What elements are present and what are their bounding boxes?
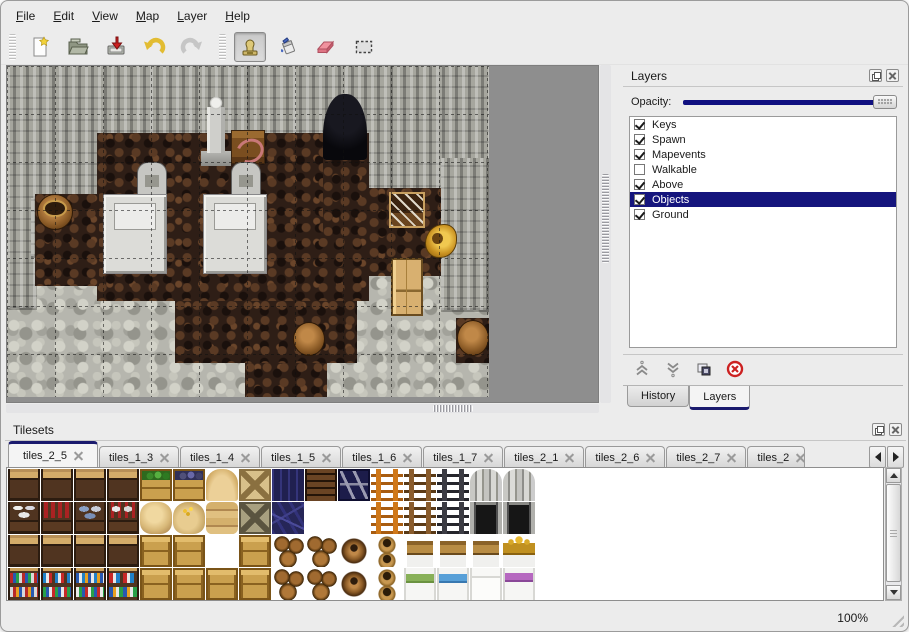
tileset-tab-label: tiles_2 — [757, 452, 789, 464]
tileset-tile-bed-blue[interactable] — [437, 568, 469, 600]
map-vertical-scrollbar-thumb[interactable] — [602, 174, 609, 263]
tileset-tile-shelf-jars[interactable] — [107, 502, 139, 534]
tileset-tab-tiles_1_7[interactable]: tiles_1_7 — [423, 446, 503, 468]
tileset-tab-label: tiles_1_7 — [433, 452, 477, 464]
tilesets-panel-title: Tilesets — [5, 423, 872, 437]
map-floor — [245, 363, 327, 397]
layer-label: Mapevents — [652, 149, 706, 161]
tileset-tile-shelftop[interactable] — [41, 469, 73, 501]
new-map-button[interactable] — [24, 32, 56, 62]
save-file-icon — [104, 35, 128, 59]
fill-tool-button[interactable] — [272, 32, 304, 62]
tileset-tile-sack-gold[interactable] — [173, 502, 205, 534]
map-object-statue[interactable] — [201, 96, 231, 166]
tileset-tile-navy-top[interactable] — [272, 469, 304, 501]
opacity-slider-groove — [683, 100, 893, 105]
eraser-tool-icon — [314, 35, 338, 59]
layers-panel-header: Layers — [623, 65, 903, 87]
tileset-tile-crate-x[interactable] — [239, 469, 271, 501]
tileset-content[interactable] — [6, 467, 884, 601]
tab-scroll-left-button[interactable] — [869, 446, 886, 468]
tilesets-panel-float-button[interactable] — [872, 423, 885, 436]
tileset-tile-shelf-books2[interactable] — [74, 568, 106, 600]
map-object-crate-tools[interactable] — [389, 192, 425, 228]
tab-close-icon[interactable] — [565, 453, 574, 462]
tileset-tile-ladder-o[interactable] — [371, 469, 403, 501]
tileset-tile-shelftop[interactable] — [8, 535, 40, 567]
lower-layer-button[interactable] — [662, 358, 684, 380]
layer-row-mapevents[interactable]: Mapevents — [630, 147, 896, 162]
tileset-tile-shelftop[interactable] — [41, 535, 73, 567]
map-floor — [323, 152, 369, 236]
tileset-tile-sack-flat[interactable] — [206, 502, 238, 534]
layers-panel-close-button[interactable] — [886, 69, 899, 82]
tileset-tab-tiles_2_6[interactable]: tiles_2_6 — [585, 446, 665, 468]
map-object-cabinet[interactable] — [391, 258, 423, 316]
tileset-tile-ladder-g[interactable] — [437, 502, 469, 534]
map-object-tombstone[interactable] — [231, 162, 261, 198]
dock-bottom-tabs: HistoryLayers — [623, 385, 903, 413]
eraser-tool-button[interactable] — [310, 32, 342, 62]
tileset-tab-tiles_1_3[interactable]: tiles_1_3 — [99, 446, 179, 468]
layer-row-walkable[interactable]: Walkable — [630, 162, 896, 177]
dock-tab-layers[interactable]: Layers — [689, 386, 750, 410]
tileset-tile-shelftop[interactable] — [107, 535, 139, 567]
tileset-tab-tiles_2_5[interactable]: tiles_2_5 — [8, 441, 98, 468]
tab-close-icon[interactable] — [403, 453, 412, 462]
map-object-tombstone[interactable] — [137, 162, 167, 198]
tileset-scrollbar-thumb[interactable] — [886, 484, 901, 582]
tab-close-icon[interactable] — [160, 453, 169, 462]
tileset-tile-sack-top[interactable] — [206, 469, 238, 501]
tileset-tile-shelf-plates[interactable] — [8, 502, 40, 534]
duplicate-layer-icon — [695, 360, 713, 378]
map-horizontal-scrollbar-thumb[interactable] — [433, 405, 473, 412]
undo-icon — [142, 35, 166, 59]
tileset-tab-label: tiles_2_6 — [595, 452, 639, 464]
layer-visibility-checkbox[interactable] — [634, 149, 645, 160]
toolbar-drag-handle[interactable] — [219, 34, 226, 60]
tileset-tile-sign[interactable] — [338, 469, 370, 501]
map-object-barrel-open[interactable] — [37, 194, 73, 230]
tileset-tile-barrel[interactable] — [338, 568, 370, 600]
menu-bar: FileEditViewMapLayerHelp — [7, 5, 259, 27]
tileset-tab-tiles_2[interactable]: tiles_2 — [747, 446, 805, 468]
tileset-tile-crate[interactable] — [173, 568, 205, 600]
map-object-bier[interactable] — [203, 194, 267, 274]
layer-label: Objects — [652, 194, 689, 206]
tileset-tile-slat[interactable] — [305, 469, 337, 501]
tileset-tile-shelftop[interactable] — [8, 469, 40, 501]
tileset-tile-shelf-books[interactable] — [8, 568, 40, 600]
tileset-tile-shelf-red[interactable] — [41, 502, 73, 534]
tileset-tile-bed-crown[interactable] — [503, 535, 535, 567]
tab-close-icon[interactable] — [322, 453, 331, 462]
layers-panel-float-button[interactable] — [869, 69, 882, 82]
stamp-tool-icon — [238, 35, 262, 59]
map-object-barrel[interactable] — [293, 322, 325, 356]
layer-row-objects[interactable]: Objects — [630, 192, 896, 207]
tileset-tile-crate[interactable] — [140, 535, 172, 567]
tab-close-icon[interactable] — [727, 453, 736, 462]
opacity-slider-handle[interactable] — [873, 95, 897, 109]
tab-scroll-left-icon — [875, 452, 881, 462]
lower-layer-icon — [664, 360, 682, 378]
menu-item-view[interactable]: View — [83, 7, 127, 25]
tileset-tab-label: tiles_2_7 — [676, 452, 720, 464]
tileset-tile-arch-top[interactable] — [503, 469, 535, 501]
layers-panel: Layers Opacity: KeysSpawnMapeventsWalkab… — [623, 65, 903, 413]
tab-close-icon[interactable] — [74, 452, 83, 461]
tileset-tab-tiles_1_6[interactable]: tiles_1_6 — [342, 446, 422, 468]
tileset-tile-barrels[interactable] — [305, 568, 337, 600]
tileset-tab-tiles_1_5[interactable]: tiles_1_5 — [261, 446, 341, 468]
opacity-slider[interactable] — [683, 94, 897, 110]
app-window: FileEditViewMapLayerHelp — [0, 0, 909, 632]
close-icon — [892, 426, 899, 433]
status-bar: 100% — [1, 607, 908, 631]
layer-actions — [623, 354, 903, 382]
tileset-tile-crate[interactable] — [239, 568, 271, 600]
fill-tool-icon — [276, 35, 300, 59]
map-canvas[interactable] — [7, 66, 489, 397]
map-vertical-scrollbar[interactable] — [600, 65, 611, 403]
tileset-tile-arch-bot[interactable] — [503, 502, 535, 534]
tileset-tile-empty[interactable] — [305, 502, 337, 534]
tileset-tab-tiles_2_1[interactable]: tiles_2_1 — [504, 446, 584, 468]
tab-scroll-right-icon — [893, 452, 899, 462]
zoom-level: 100% — [837, 611, 868, 625]
tileset-tile-crate[interactable] — [239, 535, 271, 567]
tileset-tile-arch-bot[interactable] — [470, 502, 502, 534]
tileset-tile-ladder-g[interactable] — [437, 469, 469, 501]
layers-panel-title: Layers — [623, 69, 869, 83]
tileset-tile-shelf-bottles[interactable] — [41, 568, 73, 600]
scroll-up-icon — [890, 473, 898, 478]
menu-item-map[interactable]: Map — [127, 7, 168, 25]
tileset-tile-crate-x-dark[interactable] — [239, 502, 271, 534]
map-object-barrel[interactable] — [457, 320, 489, 356]
raise-layer-icon — [633, 360, 651, 378]
rect-select-tool-button[interactable] — [348, 32, 380, 62]
new-file-icon — [28, 35, 52, 59]
scroll-up-button[interactable] — [886, 468, 901, 483]
menu-item-help[interactable]: Help — [216, 7, 259, 25]
tileset-tile-empty[interactable] — [206, 535, 238, 567]
tileset-vertical-scrollbar[interactable] — [885, 467, 902, 601]
tileset-tile-navy-planks[interactable] — [272, 502, 304, 534]
tileset-tab-label: tiles_1_3 — [109, 452, 153, 464]
toolbar — [1, 29, 908, 65]
tileset-tile-pots[interactable] — [371, 535, 403, 567]
tileset-tile-ladder-b[interactable] — [404, 469, 436, 501]
save-map-button[interactable] — [100, 32, 132, 62]
tileset-tile-crate[interactable] — [206, 568, 238, 600]
tileset-tile-crate[interactable] — [140, 568, 172, 600]
tileset-tab-scrollers — [868, 446, 904, 468]
tileset-tile-bed-purple[interactable] — [503, 568, 535, 600]
opacity-row: Opacity: — [631, 92, 897, 112]
map-viewport[interactable] — [6, 65, 599, 403]
layer-list[interactable]: KeysSpawnMapeventsWalkableAboveObjectsGr… — [629, 116, 897, 348]
tileset-tile-sack[interactable] — [140, 502, 172, 534]
open-file-icon — [66, 35, 90, 59]
tileset-tab-label: tiles_1_5 — [271, 452, 315, 464]
map-floor — [175, 301, 357, 363]
float-icon — [872, 72, 879, 79]
resize-grip-icon[interactable] — [889, 612, 904, 627]
close-icon — [889, 72, 896, 79]
layer-row-ground[interactable]: Ground — [630, 207, 896, 222]
stamp-tool-button[interactable] — [234, 32, 266, 62]
tileset-tile-bed-green[interactable] — [404, 568, 436, 600]
dock-tab-history[interactable]: History — [627, 386, 689, 407]
tileset-tile-shelftop[interactable] — [74, 535, 106, 567]
rect-select-tool-icon — [352, 35, 376, 59]
tilesets-panel-header: Tilesets — [5, 419, 906, 441]
tileset-tab-bar: tiles_2_5tiles_1_3tiles_1_4tiles_1_5tile… — [7, 441, 866, 468]
tileset-tile-shelftop[interactable] — [107, 469, 139, 501]
tileset-tile-shelftop[interactable] — [74, 469, 106, 501]
opacity-label: Opacity: — [631, 96, 683, 108]
layer-row-keys[interactable]: Keys — [630, 117, 896, 132]
undo-button[interactable] — [138, 32, 170, 62]
tileset-tile-pots[interactable] — [371, 568, 403, 600]
tileset-tile-shelf-mixed[interactable] — [107, 568, 139, 600]
tileset-tab-tiles_1_4[interactable]: tiles_1_4 — [180, 446, 260, 468]
tileset-tile-ladder-o[interactable] — [371, 502, 403, 534]
tileset-tile-shelf-blue[interactable] — [74, 502, 106, 534]
tab-close-icon[interactable] — [484, 453, 493, 462]
tileset-tile-ladder-b[interactable] — [404, 502, 436, 534]
redo-button[interactable] — [176, 32, 208, 62]
tileset-tab-tiles_2_7[interactable]: tiles_2_7 — [666, 446, 746, 468]
tileset-tile-empty[interactable] — [338, 502, 370, 534]
layer-row-above[interactable]: Above — [630, 177, 896, 192]
tileset-tile-barrels[interactable] — [272, 568, 304, 600]
layer-visibility-checkbox[interactable] — [634, 119, 645, 130]
float-icon — [875, 426, 882, 433]
tileset-tile-barrels[interactable] — [272, 535, 304, 567]
tileset-tile-arch-top[interactable] — [470, 469, 502, 501]
layer-label: Spawn — [652, 134, 686, 146]
tileset-tab-label: tiles_1_4 — [190, 452, 234, 464]
tileset-tile-bed-head[interactable] — [470, 535, 502, 567]
scroll-down-icon — [890, 590, 898, 595]
tileset-tile-bed-white[interactable] — [470, 568, 502, 600]
tileset-tile-bed-head[interactable] — [437, 535, 469, 567]
menu-item-edit[interactable]: Edit — [44, 7, 83, 25]
layer-label: Above — [652, 179, 683, 191]
scroll-down-button[interactable] — [886, 585, 901, 600]
tileset-tile-grid — [8, 469, 535, 600]
layer-visibility-checkbox[interactable] — [634, 134, 645, 145]
menu-item-layer[interactable]: Layer — [168, 7, 216, 25]
layer-visibility-checkbox[interactable] — [634, 179, 645, 190]
delete-layer-icon — [726, 360, 744, 378]
open-map-button[interactable] — [62, 32, 94, 62]
layer-label: Ground — [652, 209, 689, 221]
tilesets-panel: Tilesets tiles_2_5tiles_1_3tiles_1_4tile… — [5, 419, 906, 607]
tileset-tab-label: tiles_2_5 — [23, 450, 67, 462]
tileset-tile-crate-veg[interactable] — [140, 469, 172, 501]
toolbar-drag-handle[interactable] — [9, 34, 16, 60]
tileset-tab-label: tiles_1_6 — [352, 452, 396, 464]
tab-close-icon[interactable] — [646, 453, 655, 462]
tab-scroll-right-button[interactable] — [887, 446, 904, 468]
layer-row-spawn[interactable]: Spawn — [630, 132, 896, 147]
map-object-table[interactable] — [231, 130, 265, 164]
tileset-tile-crate-grape[interactable] — [173, 469, 205, 501]
duplicate-layer-button[interactable] — [693, 358, 715, 380]
tileset-tile-crate[interactable] — [173, 535, 205, 567]
redo-icon — [180, 35, 204, 59]
tileset-tab-label: tiles_2_1 — [514, 452, 558, 464]
map-object-cave-door[interactable] — [323, 94, 367, 160]
map-horizontal-scrollbar[interactable] — [6, 404, 599, 413]
tileset-tile-barrel[interactable] — [338, 535, 370, 567]
layer-visibility-checkbox[interactable] — [634, 164, 645, 175]
menu-item-file[interactable]: File — [7, 7, 44, 25]
tilesets-panel-close-button[interactable] — [889, 423, 902, 436]
layer-label: Keys — [652, 119, 676, 131]
tileset-tile-barrels[interactable] — [305, 535, 337, 567]
map-object-bier[interactable] — [103, 194, 167, 274]
layer-visibility-checkbox[interactable] — [634, 194, 645, 205]
delete-layer-button[interactable] — [724, 358, 746, 380]
layer-label: Walkable — [652, 164, 697, 176]
tab-close-icon[interactable] — [241, 453, 250, 462]
tileset-tile-bed-head[interactable] — [404, 535, 436, 567]
layer-visibility-checkbox[interactable] — [634, 209, 645, 220]
raise-layer-button[interactable] — [631, 358, 653, 380]
